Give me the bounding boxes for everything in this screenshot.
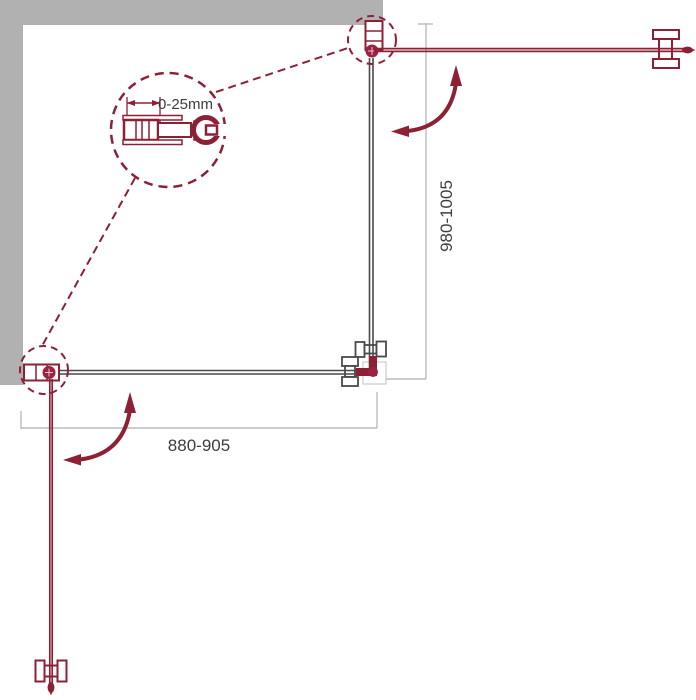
leader-line-to-top-hinge [216,47,351,92]
handle-flange [653,30,679,39]
leader-line-to-left-hinge [42,178,135,346]
handle-flange [356,342,365,357]
handle-flange [342,377,358,386]
detail-adjustment-label: 0-25mm [158,96,213,113]
width-dimension-label: 880-905 [168,436,230,455]
glass-panel-horizontal-closed [57,371,362,375]
wall-profile-left [24,365,59,381]
glass-panel-vertical-closed [370,58,374,371]
handle-flange [342,357,358,366]
dimension-depth [386,23,433,379]
door-tip-right [682,47,696,54]
wall-top [0,0,383,25]
door-handle-bottom [36,661,67,682]
swing-arrow-bottom-door [63,392,136,466]
door-open-bottom [36,379,67,696]
wall-left [0,0,23,385]
handle-flange [36,661,45,682]
handle-waist [365,345,377,354]
dimension-width [21,392,377,429]
walls [0,0,383,385]
handle-closed-vertical-panel [356,342,387,358]
corner-hinge-dot [368,367,378,377]
handle-waist [345,366,355,377]
handle-flange [377,342,387,357]
handle-waist [45,666,58,677]
depth-dimension-label: 980-1005 [437,180,456,252]
handle-flange [653,59,679,68]
door-open-top [374,30,696,68]
shower-enclosure-installation-diagram: 0-25mm 980-1005 880-905 [0,0,696,700]
corner-connector [356,356,378,377]
callout-circles [20,16,396,394]
door-tip-bottom [48,682,55,696]
handle-flange [58,661,67,682]
handle-closed-horizontal-panel [342,357,358,386]
